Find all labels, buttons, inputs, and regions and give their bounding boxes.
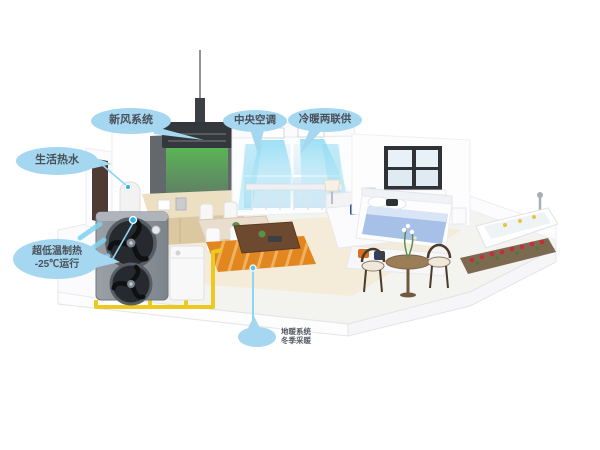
heat-pump-home-diagram: 新风系统 生活热水 中央空调 冷暖两联供 超低温制热 -25℃运行 地暖系统 冬… <box>0 0 600 450</box>
house-cutaway-illustration <box>0 0 600 450</box>
appliance <box>176 198 186 210</box>
bubble-central-ac <box>223 110 287 132</box>
nightstand <box>452 208 466 224</box>
coffee-table <box>234 222 300 253</box>
duct-riser <box>195 98 205 124</box>
anchor-dot-floor <box>250 265 256 271</box>
fan-bottom <box>111 264 151 304</box>
bubble-heating-cooling <box>288 108 362 132</box>
appliance <box>158 200 170 210</box>
pillow-accent <box>386 199 398 206</box>
anchor-dot-tank <box>126 185 131 190</box>
indoor-hydro-unit <box>170 246 204 300</box>
pillow <box>368 197 388 207</box>
anchor-dot-heat-pump <box>130 217 137 224</box>
bubble-low-temp <box>13 239 101 279</box>
brand-badge <box>152 226 160 234</box>
bubble-hot-water <box>16 147 98 175</box>
